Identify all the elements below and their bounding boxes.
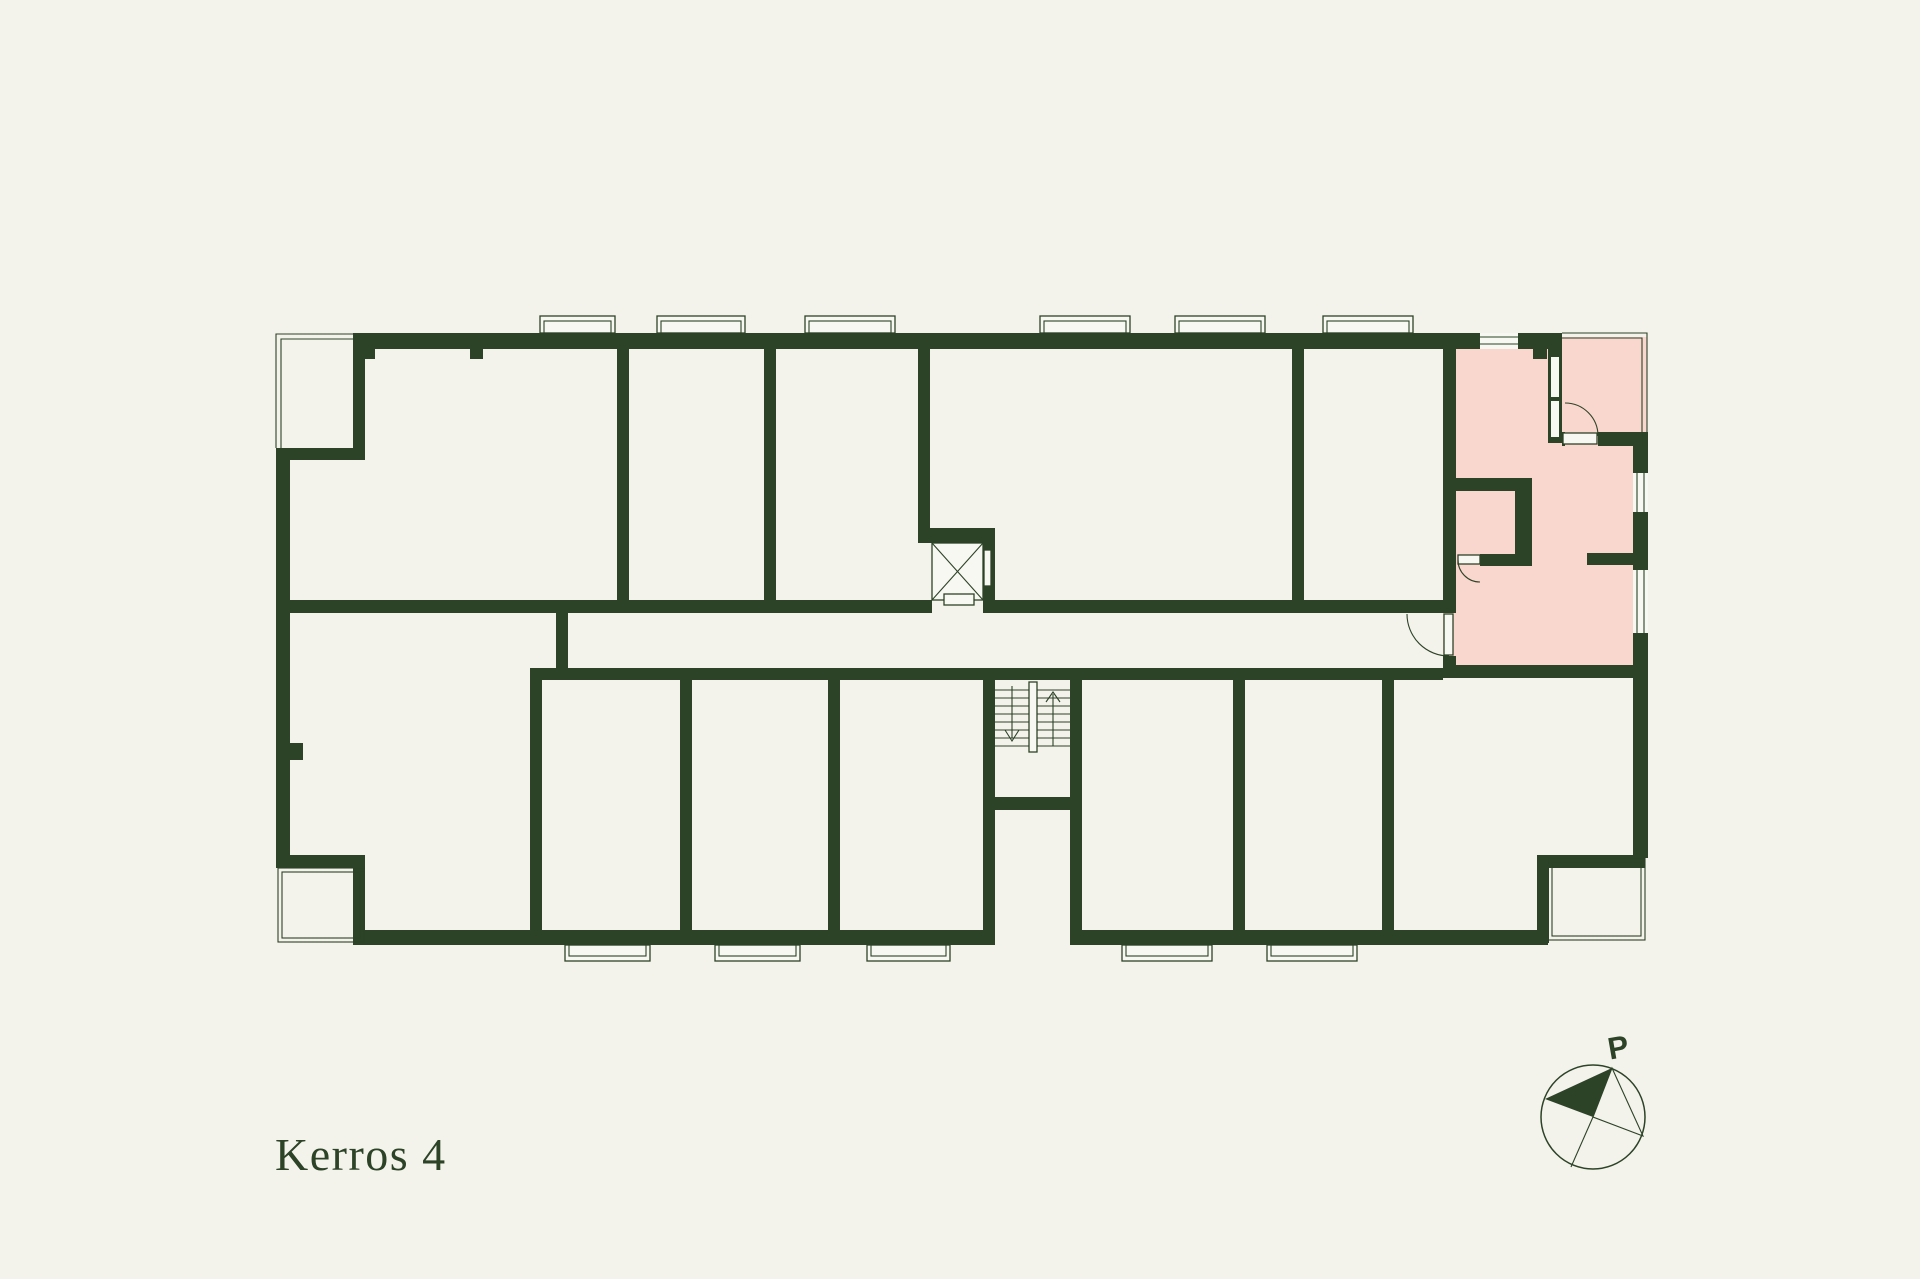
apartment-floor[interactable]	[1443, 337, 1647, 678]
elevator-door	[944, 594, 974, 605]
stairs	[995, 682, 1070, 752]
door-swing-arc	[1407, 614, 1449, 656]
balcony-top-left	[276, 334, 362, 448]
apartment-top-window	[1480, 333, 1518, 349]
door-leaf	[1458, 555, 1480, 564]
highlighted-apartment[interactable]	[1443, 337, 1647, 678]
window-icon	[1267, 945, 1357, 961]
balcony-bottom-left	[278, 868, 364, 942]
window-icon	[565, 945, 650, 961]
floor-plan-canvas: P Kerros 4	[0, 0, 1920, 1279]
window-icon	[867, 945, 950, 961]
compass: P	[1541, 1028, 1645, 1169]
window-icon	[805, 316, 895, 333]
door-sill	[1563, 433, 1597, 444]
window-icon	[657, 316, 745, 333]
top-windows	[540, 316, 1413, 333]
window-icon	[540, 316, 615, 333]
window-icon	[715, 945, 800, 961]
apartment-entrance-door	[1407, 614, 1453, 656]
floor-label: Kerros 4	[275, 1129, 447, 1180]
window-icon	[1122, 945, 1212, 961]
window-icon	[1175, 316, 1265, 333]
bottom-windows	[565, 945, 1357, 961]
window-icon	[1040, 316, 1130, 333]
balcony-bottom-right	[1548, 858, 1645, 940]
window-icon	[1323, 316, 1413, 333]
walls	[276, 333, 1648, 945]
elevator	[932, 543, 991, 605]
door-leaf	[1444, 614, 1453, 655]
compass-north-label: P	[1605, 1028, 1631, 1066]
stair-divider	[1029, 682, 1037, 752]
